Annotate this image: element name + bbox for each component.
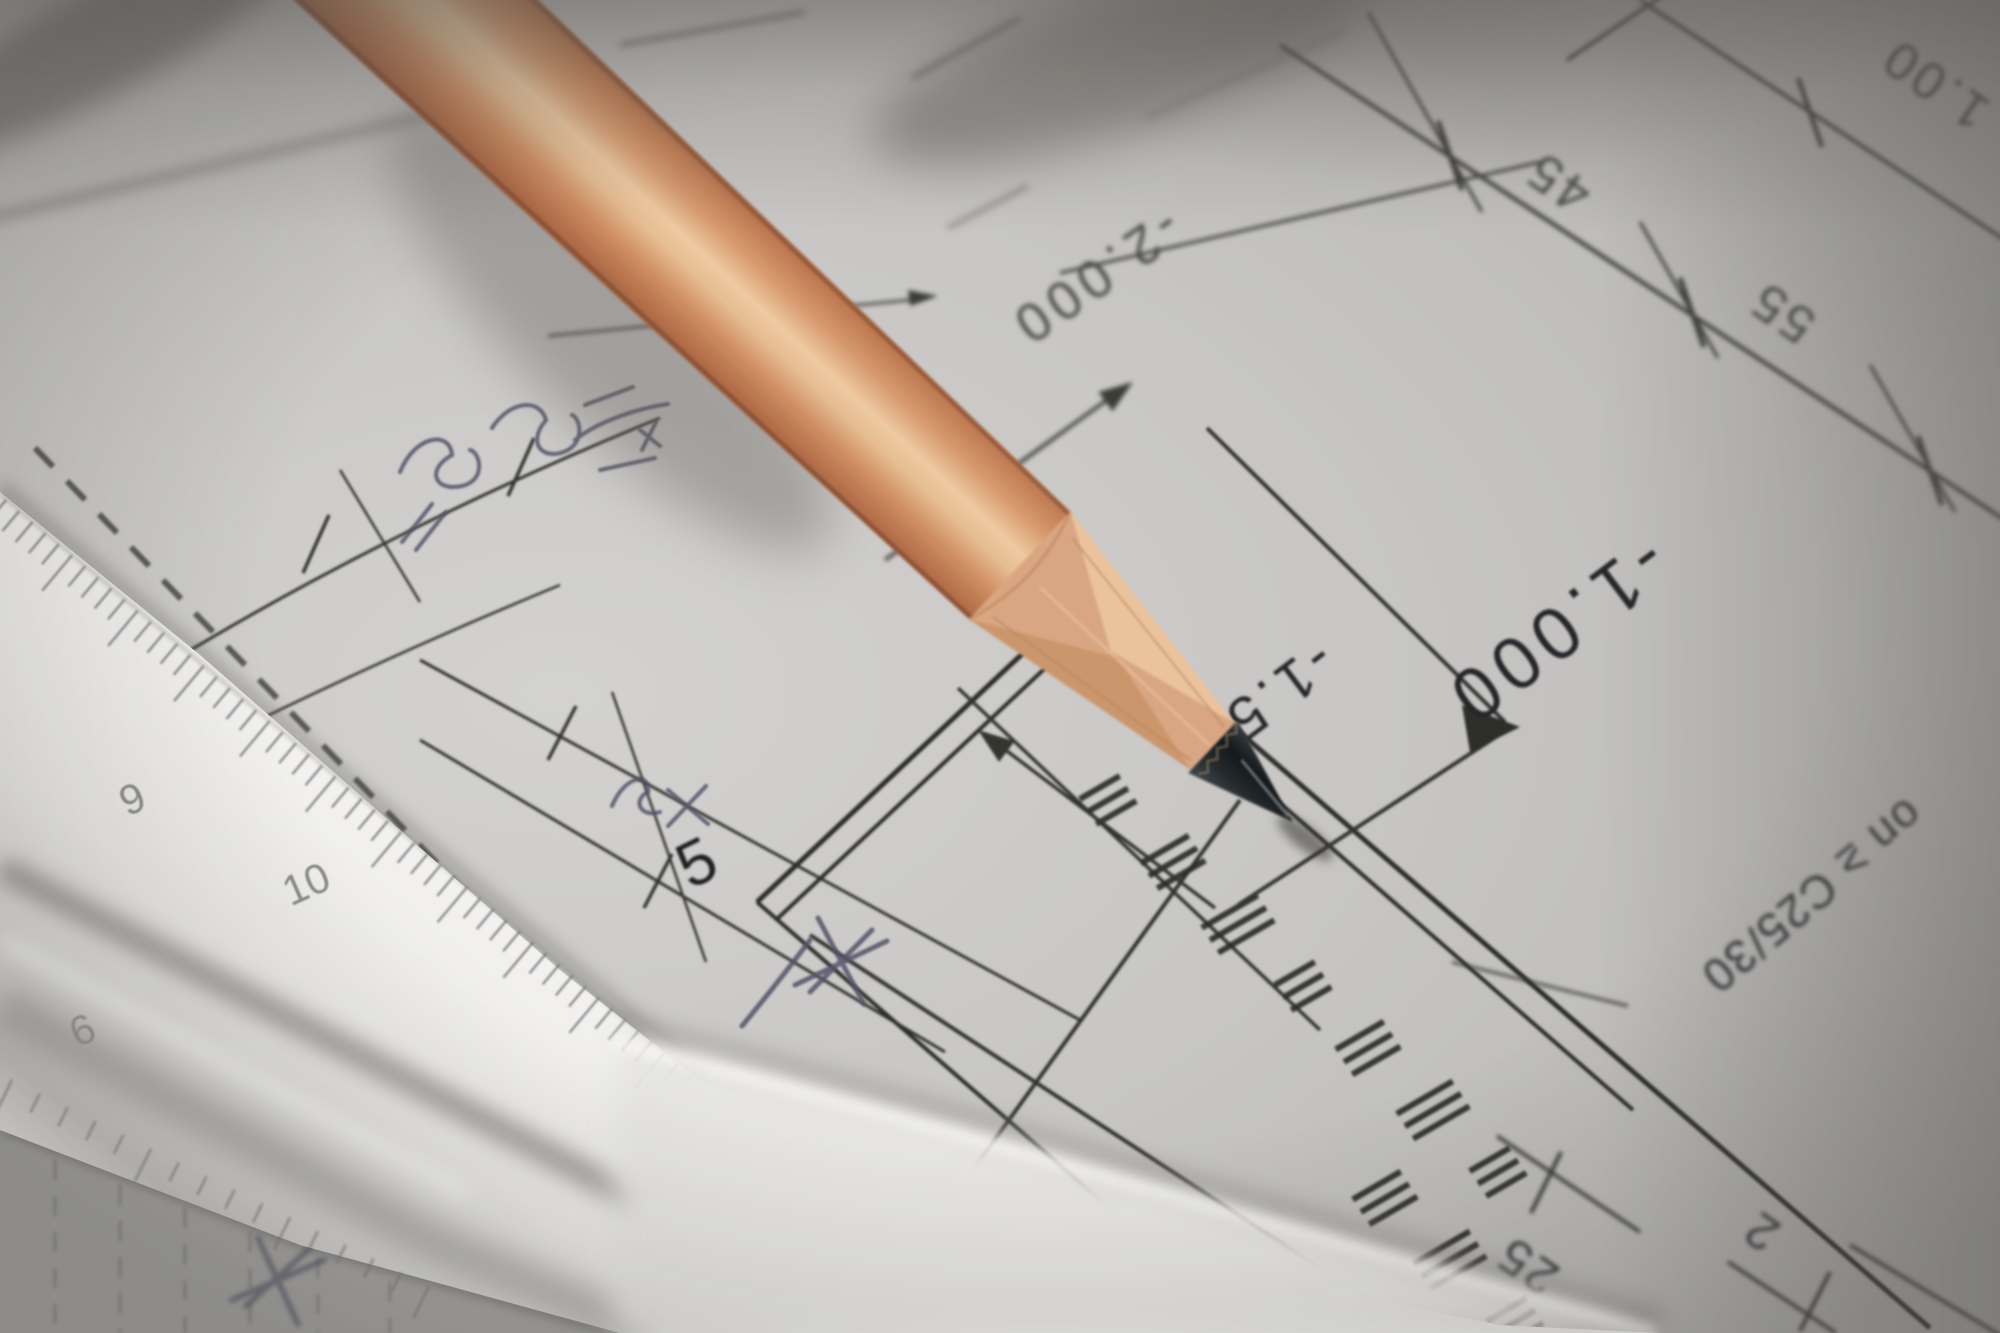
label-dim-45: 45 — [1515, 139, 1602, 224]
decor-line — [1405, 1094, 1461, 1126]
small-arrowhead — [908, 290, 938, 306]
label-elevation-main: -1.000 — [1429, 522, 1685, 743]
label-dim-100: 1.00 — [1871, 27, 2000, 142]
label-elevation-upper: -2.000 — [998, 197, 1192, 358]
note-leader — [1452, 962, 1628, 1006]
decor-line — [1413, 1106, 1469, 1138]
label-dim-2: 2 — [1735, 1201, 1790, 1263]
decor-line — [1218, 920, 1274, 952]
macro-photo-pencil-on-blueprint: -2.000 45 55 1.00 — [0, 0, 2000, 1333]
photo-canvas: -2.000 45 55 1.00 — [0, 0, 2000, 1333]
handwritten-3x — [612, 779, 708, 826]
label-dim-55: 55 — [1739, 269, 1826, 354]
leader-arrowhead — [1099, 382, 1134, 411]
ruler-near-blur-band — [612, 1032, 1660, 1333]
corner-shadow — [0, 0, 319, 199]
decor-line — [1202, 895, 1258, 927]
decor-line — [1397, 1081, 1453, 1113]
decor-line — [1210, 908, 1266, 940]
dimension-chain-line — [1280, 45, 2000, 520]
drawing-lines-right: on ≥ C25/30 25 2 — [1452, 789, 2000, 1333]
label-note-concrete: on ≥ C25/30 — [1691, 789, 1933, 1004]
